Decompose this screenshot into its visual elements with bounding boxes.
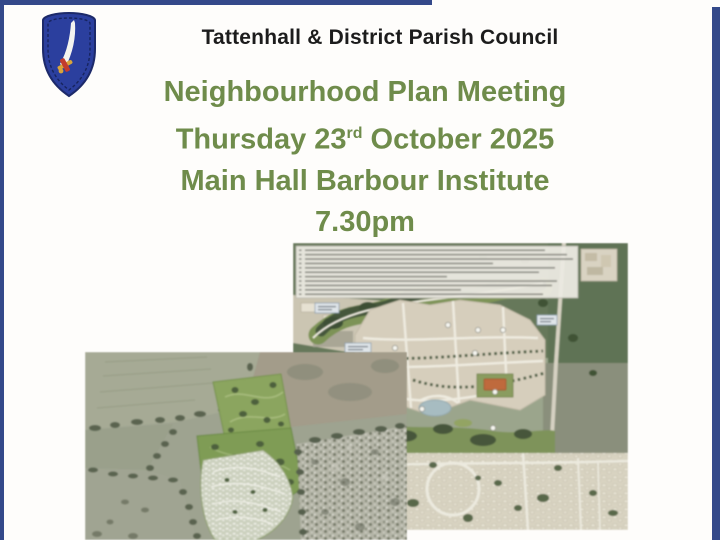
meeting-title-line1: Neighbourhood Plan Meeting <box>40 72 690 113</box>
frame-edge-right <box>712 7 720 540</box>
council-name-heading: Tattenhall & District Parish Council <box>110 26 650 50</box>
meeting-date-line: Thursday 23rd October 2025 <box>40 113 690 161</box>
frame-edge-left <box>0 0 4 540</box>
meeting-date-prefix: Thursday 23 <box>176 124 347 156</box>
poster-page: Tattenhall & District Parish Council Nei… <box>0 0 720 540</box>
meeting-date-suffix: October 2025 <box>362 124 554 156</box>
aerial-photo-image <box>85 352 407 540</box>
meeting-venue-line: Main Hall Barbour Institute <box>40 161 690 202</box>
meeting-time-line: 7.30pm <box>40 202 690 243</box>
frame-edge-top <box>0 0 432 5</box>
meeting-title-block: Neighbourhood Plan Meeting Thursday 23rd… <box>40 72 690 243</box>
meeting-date-ordinal: rd <box>347 125 363 142</box>
